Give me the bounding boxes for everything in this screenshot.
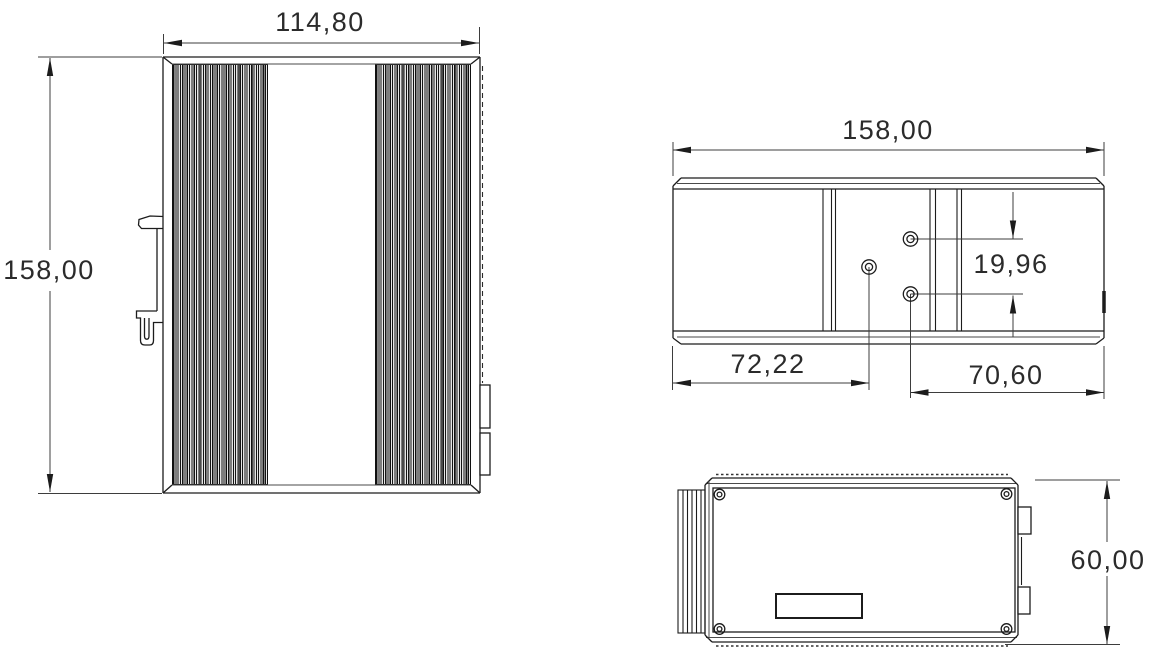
front-enclosure-outline [163, 57, 480, 493]
dim-front-height-label: 158,00 [0, 256, 98, 284]
arrowhead-left [673, 147, 691, 153]
corner-screw-bottom-left [714, 624, 725, 635]
dim-side-height-label: 60,00 [1060, 546, 1156, 574]
dim-top-width-label: 158,00 [838, 116, 938, 144]
corner-screw-top-right [1001, 489, 1012, 500]
arrowhead-right [851, 380, 869, 386]
arrowhead-up [1104, 481, 1110, 499]
arrowhead-down [1010, 221, 1016, 239]
arrowhead-right [461, 40, 479, 46]
corner-screw-top-left [714, 489, 725, 500]
arrowhead-left [673, 380, 691, 386]
side-cover-plate [713, 488, 1015, 632]
arrowhead-right [1086, 389, 1104, 395]
front-connector-bump-top [480, 385, 490, 428]
arrowhead-left [911, 389, 929, 395]
front-connector-bump-bottom [480, 433, 490, 475]
corner-screw-bottom-right [1001, 624, 1012, 635]
side-view [678, 475, 1120, 647]
product-label-plate [776, 594, 862, 618]
front-view [38, 27, 490, 494]
drawing-svg [0, 0, 1157, 668]
arrowhead-down [1104, 626, 1110, 644]
dim-hole-offset-right-label: 70,60 [956, 361, 1056, 389]
arrowhead-down [47, 474, 53, 492]
din-rail-clip [137, 216, 164, 345]
side-connector-bump-top [1018, 507, 1031, 534]
top-panel-dividers [823, 189, 962, 331]
dim-front-width-label: 114,80 [250, 8, 390, 36]
arrowhead-up [1010, 296, 1016, 314]
dim-hole-offset-left-label: 72,22 [718, 350, 818, 378]
dim-hole-spacing-label: 19,96 [963, 250, 1059, 278]
top-width-dimension [673, 142, 1104, 176]
drawing-canvas: 114,80 158,00 158,00 19,96 72,22 70,60 6… [0, 0, 1157, 668]
side-heatsink-block [678, 490, 705, 633]
arrowhead-right [1086, 147, 1104, 153]
arrowhead-left [164, 40, 182, 46]
side-connector-bump-bottom [1018, 587, 1030, 614]
arrowhead-up [47, 58, 53, 76]
